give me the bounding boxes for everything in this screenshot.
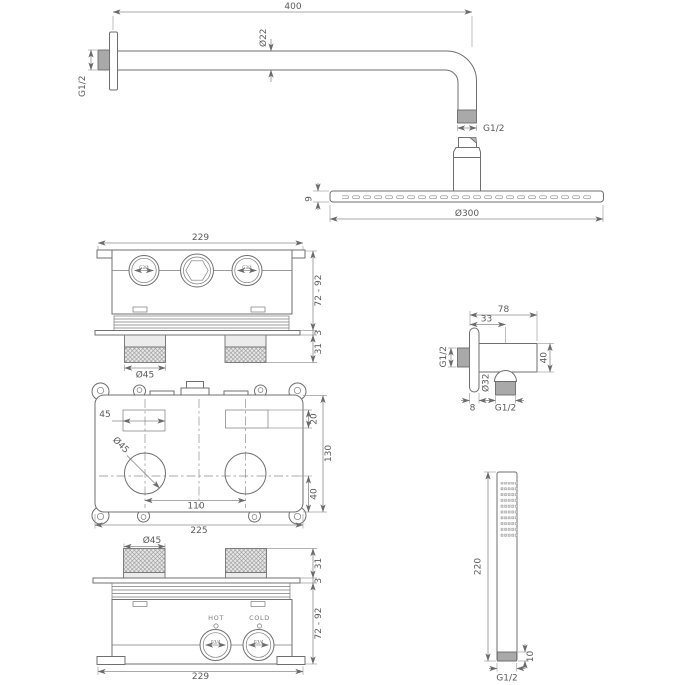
outlet-thread-down bbox=[496, 382, 516, 396]
cold-label: COLD bbox=[249, 614, 270, 622]
dim-hand-shower-conn-label: 10 bbox=[526, 651, 536, 663]
valve-bottom-rib-stack bbox=[112, 583, 290, 600]
shower-arm: 400 Ø22 G1/2 G1/2 bbox=[78, 2, 504, 134]
arm-end-thread bbox=[458, 110, 477, 123]
arm-tube-outer bbox=[118, 51, 477, 110]
technical-drawing-page: 400 Ø22 G1/2 G1/2 9 Ø300 bbox=[0, 0, 685, 685]
valve-bottom-ear-right bbox=[277, 657, 305, 665]
hand-shower-connector bbox=[497, 652, 516, 661]
wall-outlet: 78 33 G1/2 Ø32 40 8 G1/2 bbox=[439, 305, 554, 414]
head-ball-flare bbox=[454, 148, 481, 158]
dim-hole-spacing-label: 110 bbox=[187, 502, 204, 512]
dim-valve-bottom-plate-label: 3 bbox=[314, 578, 324, 584]
shower-set-drawing: 400 Ø22 G1/2 G1/2 9 Ø300 bbox=[0, 0, 685, 685]
dim-valve-bottom-depth-label: 72 - 92 bbox=[314, 608, 324, 640]
head-stem bbox=[454, 158, 481, 192]
dim-valve-top-depth-label: 72 - 92 bbox=[314, 275, 324, 307]
arm-wall-thread bbox=[98, 50, 110, 70]
valve-top-view: G3/4 G3/4 bbox=[95, 233, 324, 381]
valve-bottom-view: HOT COLD G3/4 G3/4 Ø45 31 3 72 - 92 bbox=[93, 535, 324, 682]
valve-bottom-ear-left bbox=[97, 657, 125, 665]
dim-end-thread-label: G1/2 bbox=[483, 124, 504, 134]
dim-outlet-inlet-label: G1/2 bbox=[439, 346, 449, 367]
valve-front-view: 45 Ø45 110 225 20 130 40 bbox=[92, 382, 334, 537]
dim-valve-bottom-knobh-label: 31 bbox=[314, 558, 324, 569]
dim-outlet-dia-label: Ø32 bbox=[481, 373, 492, 392]
head-nozzle-band bbox=[342, 195, 592, 200]
dim-valve-top-width-label: 229 bbox=[192, 233, 209, 243]
valve-stem-protrusion bbox=[187, 382, 204, 389]
arm-end-dimension bbox=[458, 125, 477, 131]
valve-bottom-knob-left bbox=[124, 549, 166, 579]
dim-body-width-label: 225 bbox=[190, 526, 207, 536]
arm-wall-flange bbox=[110, 32, 118, 90]
dim-hand-shower-thread-label: G1/2 bbox=[496, 674, 517, 684]
arm-tube-inner bbox=[118, 70, 459, 110]
valve-bottom-plate bbox=[93, 578, 300, 583]
hand-shower-nozzles bbox=[500, 482, 518, 538]
dim-outlet-offset-label: 33 bbox=[481, 315, 492, 325]
valve-top-plate bbox=[95, 331, 300, 336]
dim-slot-height-label: 20 bbox=[310, 413, 320, 425]
dim-outlet-height-label: 40 bbox=[540, 352, 550, 364]
dim-outlet-thread-label: G1/2 bbox=[495, 404, 516, 414]
dim-valve-bottom-width-label: 229 bbox=[192, 672, 209, 682]
cold-port-thread-label: G3/4 bbox=[254, 640, 264, 645]
dim-outlet-width-label: 78 bbox=[498, 305, 510, 315]
dim-valve-top-knobh-label: 31 bbox=[314, 343, 324, 354]
arm-dimensions bbox=[88, 12, 472, 82]
hot-label: HOT bbox=[208, 614, 224, 622]
dim-hand-shower-length-label: 220 bbox=[474, 558, 484, 575]
outlet-inlet-thread bbox=[458, 348, 470, 367]
dim-head-diameter-label: Ø300 bbox=[455, 208, 480, 219]
hot-port-thread-label: G3/4 bbox=[211, 640, 221, 645]
port-right-thread-label: G3/4 bbox=[242, 265, 252, 270]
valve-top-knob-right bbox=[225, 335, 266, 363]
dim-head-thickness-label: 9 bbox=[305, 196, 315, 202]
dim-slot-width-label: 45 bbox=[99, 410, 110, 420]
dim-arm-diameter-label: Ø22 bbox=[258, 28, 269, 47]
outlet-wall-plate bbox=[470, 328, 480, 392]
valve-bottom-knob-right bbox=[226, 549, 267, 579]
dim-valve-top-plate-label: 3 bbox=[314, 330, 324, 336]
dim-body-height-label: 130 bbox=[324, 445, 334, 462]
dim-valve-top-knobd-label: Ø45 bbox=[136, 370, 155, 381]
dim-hole-center-label: 40 bbox=[310, 488, 320, 500]
shower-head: 9 Ø300 bbox=[305, 138, 604, 223]
hand-shower: 220 10 G1/2 bbox=[474, 472, 537, 684]
dim-outlet-plate-label: 8 bbox=[470, 404, 476, 414]
dim-arm-length-label: 400 bbox=[284, 2, 301, 12]
valve-top-rib-stack bbox=[114, 316, 289, 331]
valve-top-knob-left bbox=[125, 335, 166, 363]
dim-valve-bottom-knobd-label: Ø45 bbox=[143, 535, 162, 546]
outlet-body bbox=[479, 344, 537, 373]
dim-wall-thread-label: G1/2 bbox=[78, 76, 88, 97]
port-left-thread-label: G3/4 bbox=[139, 265, 149, 270]
